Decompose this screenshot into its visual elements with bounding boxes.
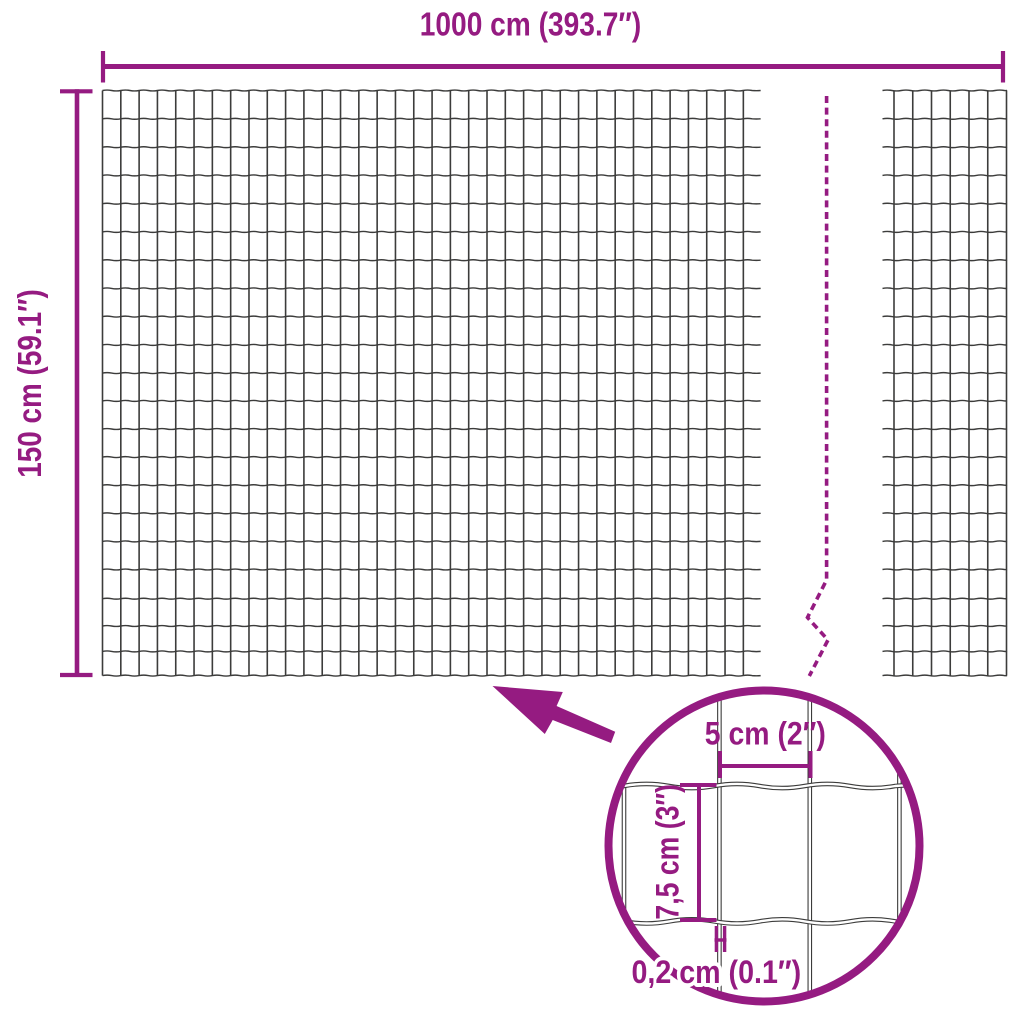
svg-text:0,2 cm (0.1″): 0,2 cm (0.1″) [632,954,802,990]
svg-text:150 cm (59.1″): 150 cm (59.1″) [11,289,48,478]
svg-text:5 cm (2″): 5 cm (2″) [705,716,826,752]
svg-text:7,5 cm (3″): 7,5 cm (3″) [650,784,686,920]
svg-text:1000 cm (393.7″): 1000 cm (393.7″) [420,6,642,43]
